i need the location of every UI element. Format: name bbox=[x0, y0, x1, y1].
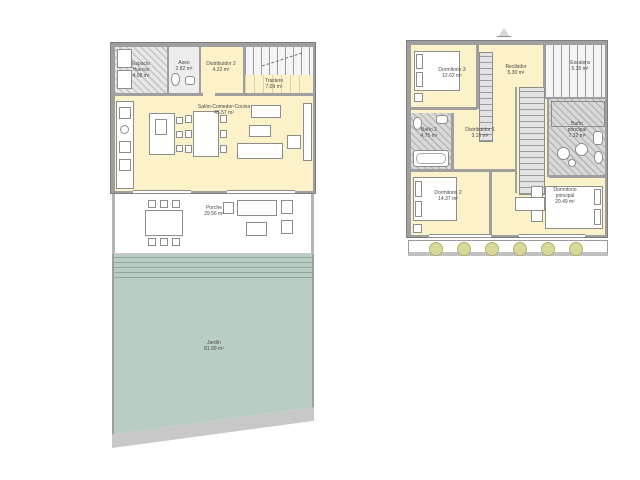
armchair-icon bbox=[287, 135, 301, 149]
closet-icon bbox=[519, 87, 545, 195]
garden-pergola-texture bbox=[112, 254, 314, 278]
stool-icon bbox=[176, 117, 183, 124]
chair-icon bbox=[220, 130, 227, 138]
wardrobe-icon bbox=[479, 52, 493, 142]
gf-building bbox=[110, 42, 316, 194]
planter-icon bbox=[485, 242, 499, 256]
uf-terrace bbox=[408, 240, 608, 256]
round-chair-icon bbox=[575, 143, 588, 156]
round-table-icon bbox=[568, 159, 576, 167]
pillow-icon bbox=[416, 54, 423, 69]
wall bbox=[549, 175, 605, 178]
uf-interior bbox=[411, 45, 605, 235]
chair-icon bbox=[185, 130, 192, 138]
sink-icon bbox=[436, 115, 448, 124]
stove-icon bbox=[119, 107, 131, 119]
garden-wall-right bbox=[312, 254, 314, 408]
wall bbox=[515, 87, 517, 193]
outdoor-table bbox=[145, 210, 183, 236]
shower-icon bbox=[551, 101, 605, 127]
planter-icon bbox=[569, 242, 583, 256]
room-porche bbox=[112, 194, 314, 254]
upper-floor-plan: Dormitorio 3 12.62 m² Recibidor 5.30 m² … bbox=[406, 28, 610, 258]
chair-icon bbox=[160, 238, 168, 246]
stool-icon bbox=[176, 145, 183, 152]
wall bbox=[215, 93, 313, 96]
wall bbox=[411, 169, 517, 172]
pillow-icon bbox=[594, 209, 601, 225]
floor-plan-page: Espacio Huecos 4.08 m² Aseo 2.82 m² Dist… bbox=[0, 0, 640, 480]
dining-table bbox=[193, 111, 219, 157]
coffee-table bbox=[246, 222, 267, 236]
wall bbox=[489, 172, 492, 235]
planter-icon bbox=[513, 242, 527, 256]
pillow-icon bbox=[416, 72, 423, 87]
wall bbox=[115, 93, 203, 96]
wall bbox=[243, 47, 245, 93]
garden-wall-left bbox=[112, 254, 114, 435]
toilet-icon bbox=[171, 73, 180, 86]
wall bbox=[199, 47, 201, 93]
chair-icon bbox=[220, 145, 227, 153]
bench-icon bbox=[515, 197, 545, 211]
planter-icon bbox=[457, 242, 471, 256]
planter-icon bbox=[541, 242, 555, 256]
appliance-icon bbox=[119, 141, 131, 153]
island-sink bbox=[155, 119, 167, 135]
chair-icon bbox=[148, 200, 156, 208]
chair-icon bbox=[185, 115, 192, 123]
armchair-icon bbox=[223, 202, 234, 214]
window bbox=[429, 234, 491, 238]
chair-icon bbox=[220, 115, 227, 123]
cabinet bbox=[117, 49, 132, 68]
room-distribuidor-2 bbox=[199, 47, 245, 93]
sofa-icon bbox=[237, 143, 283, 159]
armchair-icon bbox=[281, 200, 293, 214]
room-trastero bbox=[245, 75, 305, 93]
uf-staircase bbox=[545, 45, 605, 97]
nightstand-icon bbox=[414, 93, 423, 102]
outdoor-sofa bbox=[237, 200, 277, 216]
tv-unit bbox=[303, 103, 312, 161]
chair-icon bbox=[172, 238, 180, 246]
room-aseo bbox=[167, 47, 199, 93]
stool-icon bbox=[176, 131, 183, 138]
wall bbox=[411, 107, 477, 110]
sink-icon bbox=[593, 131, 603, 145]
round-chair-icon bbox=[557, 147, 570, 160]
chair-icon bbox=[172, 200, 180, 208]
uf-building bbox=[406, 40, 608, 238]
armchair-icon bbox=[281, 220, 293, 234]
north-arrow-outline bbox=[497, 36, 511, 37]
nightstand-icon bbox=[413, 224, 422, 233]
wall bbox=[547, 99, 549, 177]
pillow-icon bbox=[594, 189, 601, 205]
toilet-icon bbox=[413, 117, 422, 130]
chair-icon bbox=[185, 145, 192, 153]
bathtub-inner bbox=[416, 153, 446, 164]
ground-floor-plan: Espacio Huecos 4.08 m² Aseo 2.82 m² Dist… bbox=[108, 40, 318, 448]
coffee-table bbox=[251, 105, 281, 118]
cabinet bbox=[117, 70, 132, 89]
appliance-icon bbox=[119, 159, 131, 171]
wall bbox=[451, 113, 454, 169]
wall bbox=[476, 45, 479, 109]
sink-icon bbox=[120, 125, 129, 134]
toilet-icon bbox=[594, 151, 603, 164]
pillow-icon bbox=[415, 201, 422, 217]
room-jardin bbox=[112, 254, 314, 448]
side-table bbox=[249, 125, 271, 137]
sink-icon bbox=[185, 76, 195, 85]
pillow-icon bbox=[415, 181, 422, 197]
chair-icon bbox=[160, 200, 168, 208]
gf-interior bbox=[115, 47, 313, 191]
wall bbox=[167, 47, 169, 93]
chair-icon bbox=[148, 238, 156, 246]
window bbox=[519, 234, 585, 238]
planter-icon bbox=[429, 242, 443, 256]
